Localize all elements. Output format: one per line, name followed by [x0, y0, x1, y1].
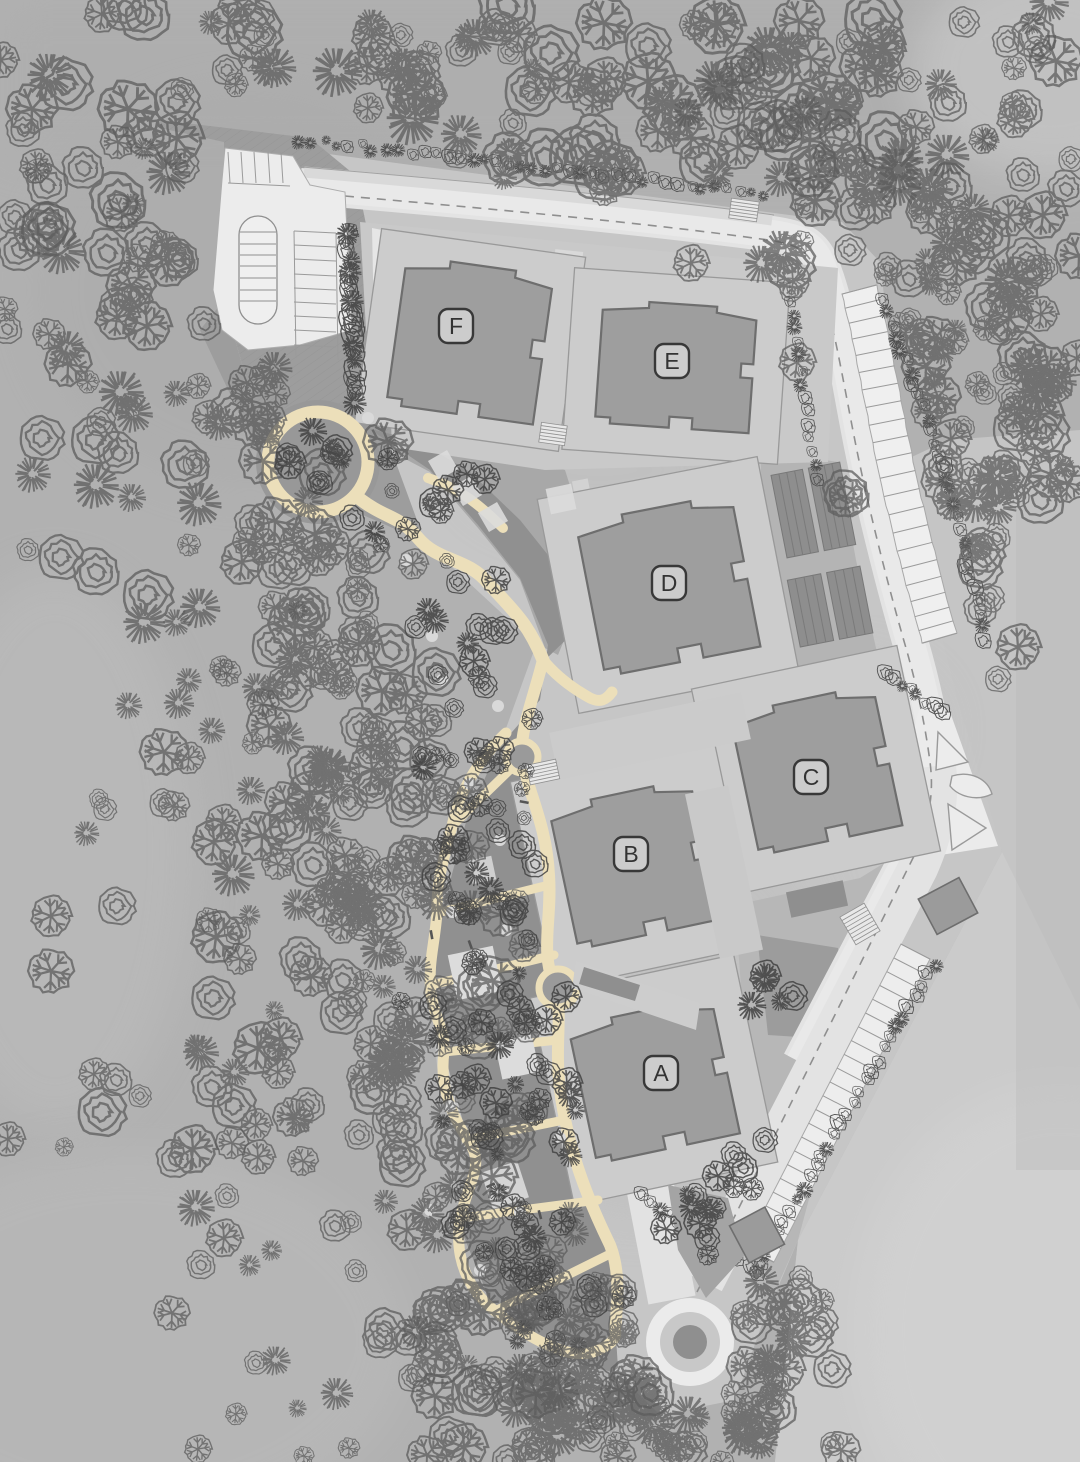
svg-text:A: A [653, 1060, 669, 1086]
svg-text:C: C [803, 764, 820, 790]
svg-text:F: F [449, 313, 463, 339]
svg-text:E: E [664, 348, 679, 374]
svg-text:D: D [661, 570, 678, 596]
svg-text:B: B [623, 841, 638, 867]
